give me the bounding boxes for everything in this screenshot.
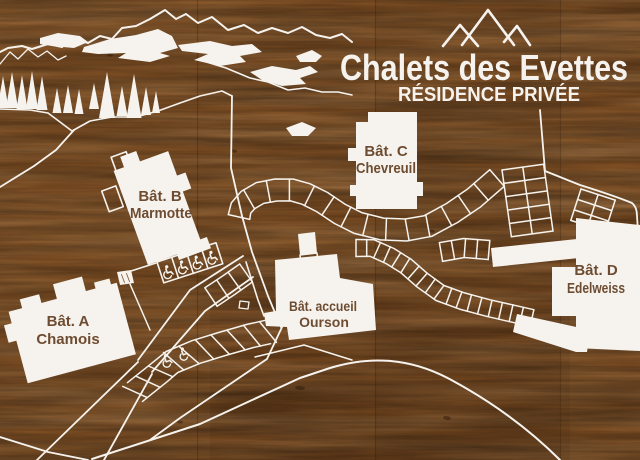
svg-text:Edelweiss: Edelweiss [567, 280, 625, 297]
svg-text:Chamois: Chamois [36, 331, 99, 348]
svg-text:Bât. D: Bât. D [574, 262, 618, 279]
svg-text:Ourson: Ourson [299, 314, 349, 330]
svg-text:Chevreuil: Chevreuil [356, 160, 416, 177]
svg-text:Bât. accueil: Bât. accueil [289, 298, 357, 314]
svg-text:Bât. C: Bât. C [364, 143, 408, 160]
svg-text:Chalets des Evettes: Chalets des Evettes [340, 47, 628, 88]
svg-text:RÉSIDENCE PRIVÉE: RÉSIDENCE PRIVÉE [398, 83, 580, 106]
svg-text:Bât. A: Bât. A [47, 313, 90, 330]
svg-text:Marmotte: Marmotte [130, 205, 192, 222]
svg-text:Bât. B: Bât. B [138, 188, 182, 205]
